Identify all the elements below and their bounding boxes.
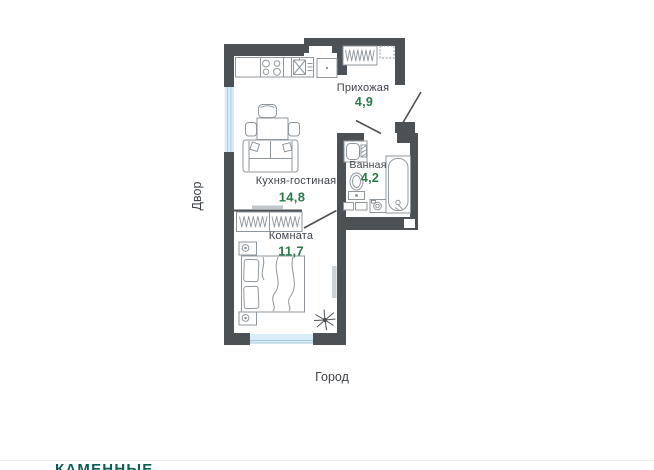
bed-icon	[242, 256, 305, 312]
window-bottom-icon	[250, 334, 313, 344]
room-label-hallway: Прихожая	[337, 82, 390, 94]
washing-machine-icon	[370, 200, 386, 213]
chair-icon	[289, 123, 300, 137]
floorplan-drawing	[0, 0, 654, 470]
room-area-kitchen-living: 14,8	[279, 190, 306, 205]
window-left-icon	[225, 87, 235, 152]
floorplan-canvas: Прихожая 4,9 Ванная 4,2 Кухня-гостиная 1…	[0, 0, 654, 470]
entrance-door-icon	[403, 92, 421, 123]
radiator-icon	[332, 266, 337, 298]
sofa-icon	[243, 140, 298, 172]
room-area-room: 11,7	[278, 244, 304, 259]
wardrobe-icon	[237, 212, 303, 232]
duct-icon	[404, 219, 415, 228]
chair-icon	[246, 123, 257, 137]
courtyard-label: Двор	[190, 182, 204, 211]
dining-table-icon	[246, 105, 300, 140]
chair-icon	[259, 105, 277, 118]
bathroom-door-icon	[356, 121, 381, 134]
room-label-kitchen-living: Кухня-гостиная	[256, 175, 337, 187]
room-label-bathroom: Ванная	[349, 159, 386, 171]
brand-logo: КАМЕННЫЕ	[55, 462, 153, 470]
nightstand-icon	[239, 312, 257, 325]
room-door-icon	[304, 211, 337, 229]
nightstand-icon	[239, 242, 257, 255]
shelf-icon	[252, 206, 283, 210]
hallway-wardrobe-icon	[343, 46, 377, 65]
shoe-box-icon	[380, 46, 394, 58]
plant-icon	[314, 310, 336, 331]
bathtub-icon	[386, 156, 411, 213]
room-area-bathroom: 4,2	[361, 171, 379, 185]
room-area-hallway: 4,9	[355, 95, 373, 109]
room-label-room: Комната	[269, 230, 313, 242]
city-label: Город	[315, 370, 349, 384]
fridge-icon	[317, 59, 337, 78]
